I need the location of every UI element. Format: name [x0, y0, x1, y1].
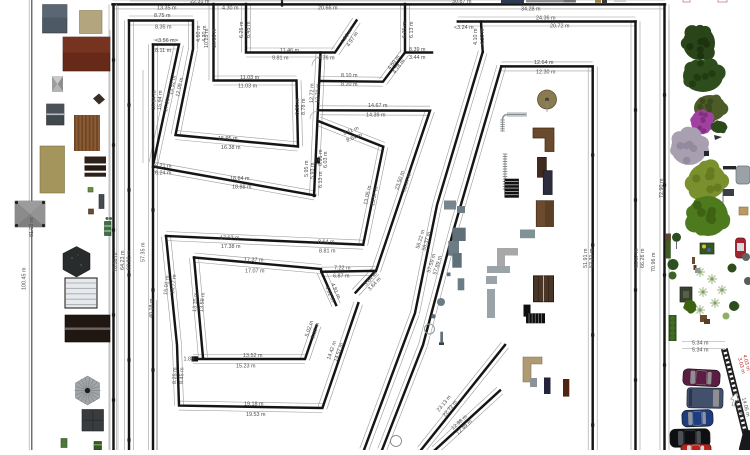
- svg-text:<3.56 m>: <3.56 m>: [155, 38, 178, 44]
- svg-text:10.05 m: 10.05 m: [212, 28, 218, 48]
- svg-text:12.73 m: 12.73 m: [315, 83, 322, 103]
- svg-text:66.26 m: 66.26 m: [640, 248, 646, 268]
- svg-text:20.66 m: 20.66 m: [318, 6, 338, 12]
- svg-text:19.18 m: 19.18 m: [244, 401, 264, 407]
- svg-text:8.81 m: 8.81 m: [319, 249, 336, 255]
- svg-text:8.78 m: 8.78 m: [301, 98, 307, 115]
- svg-text:40.18 m: 40.18 m: [149, 298, 155, 318]
- svg-text:6.21 m: 6.21 m: [155, 164, 172, 170]
- svg-text:63.82 m: 63.82 m: [127, 250, 133, 270]
- svg-text:8.45 m: 8.45 m: [179, 367, 186, 384]
- svg-text:70.96 m: 70.96 m: [651, 252, 657, 272]
- svg-text:9.81 m: 9.81 m: [272, 56, 289, 62]
- svg-text:4.30 m: 4.30 m: [222, 6, 239, 12]
- svg-text:6.13 m: 6.13 m: [409, 21, 415, 38]
- svg-text:17.37 m: 17.37 m: [244, 258, 264, 264]
- svg-text:1.88: 1.88: [184, 357, 195, 363]
- svg-text:6.13 m: 6.13 m: [318, 171, 324, 188]
- svg-text:20.72 m: 20.72 m: [550, 24, 570, 30]
- svg-text:24.36 m: 24.36 m: [536, 16, 556, 22]
- svg-text:15.95 m: 15.95 m: [218, 136, 238, 142]
- svg-text:18.88 m: 18.88 m: [232, 185, 252, 191]
- svg-text:4.76 m: 4.76 m: [318, 56, 335, 62]
- svg-text:8.35 m: 8.35 m: [155, 24, 172, 30]
- svg-text:6.24 m: 6.24 m: [155, 171, 172, 177]
- svg-text:18.64 m: 18.64 m: [230, 176, 250, 182]
- svg-text:6.87 m: 6.87 m: [333, 274, 350, 280]
- svg-text:5.34 m: 5.34 m: [692, 341, 709, 347]
- svg-text:4.30 m: 4.30 m: [202, 25, 208, 42]
- svg-text:8.39 m: 8.39 m: [409, 47, 426, 53]
- svg-text:6.25 m: 6.25 m: [239, 21, 245, 38]
- svg-text:57.35 m: 57.35 m: [141, 242, 147, 262]
- svg-text:12.30 m: 12.30 m: [536, 70, 556, 76]
- svg-text:6.25 m: 6.25 m: [402, 21, 408, 38]
- svg-text:34.28 m: 34.28 m: [521, 7, 541, 13]
- svg-text:8.10 m: 8.10 m: [341, 73, 358, 79]
- svg-text:4.10 m: 4.10 m: [473, 28, 479, 45]
- svg-text:<3.24 m: <3.24 m: [454, 25, 474, 31]
- svg-text:4.10 m: 4.10 m: [480, 28, 486, 45]
- svg-text:17.62 m: 17.62 m: [220, 236, 240, 242]
- svg-text:3.44 m: 3.44 m: [409, 55, 426, 61]
- svg-text:12.64 m: 12.64 m: [534, 60, 554, 66]
- svg-text:64.23 m: 64.23 m: [120, 250, 126, 270]
- svg-text:19.53 m: 19.53 m: [246, 412, 266, 418]
- svg-text:8.11 m: 8.11 m: [155, 48, 172, 54]
- svg-text:22.31 m: 22.31 m: [190, 0, 210, 5]
- svg-text:13.52 m: 13.52 m: [243, 353, 263, 359]
- svg-text:6.45 m: 6.45 m: [246, 21, 252, 38]
- svg-text:16.38 m: 16.38 m: [221, 145, 241, 151]
- svg-text:11.03 m: 11.03 m: [240, 75, 260, 81]
- svg-text:13.35 m: 13.35 m: [157, 6, 177, 12]
- svg-text:14.67 m: 14.67 m: [368, 103, 388, 109]
- svg-text:15.23 m: 15.23 m: [236, 364, 256, 370]
- svg-text:11.03 m: 11.03 m: [238, 84, 258, 90]
- svg-text:6.03 m: 6.03 m: [323, 151, 329, 168]
- svg-text:7.22 m: 7.22 m: [334, 266, 351, 272]
- svg-text:52.31 m: 52.31 m: [589, 248, 595, 268]
- svg-text:70.06 m: 70.06 m: [113, 252, 119, 272]
- svg-text:17.38 m: 17.38 m: [221, 244, 241, 250]
- svg-text:72.90 m: 72.90 m: [659, 178, 665, 198]
- svg-text:14.39 m: 14.39 m: [366, 113, 386, 119]
- svg-text:8.64 m: 8.64 m: [318, 240, 335, 246]
- svg-text:5.93 m: 5.93 m: [310, 162, 316, 179]
- svg-text:5.34 m: 5.34 m: [692, 348, 709, 354]
- svg-text:8.75 m: 8.75 m: [154, 13, 171, 19]
- svg-text:8.25 m: 8.25 m: [172, 367, 179, 384]
- svg-text:100.45 m: 100.45 m: [22, 267, 28, 290]
- svg-text:11.46 m: 11.46 m: [280, 48, 300, 54]
- svg-text:81.02 m: 81.02 m: [29, 217, 35, 237]
- svg-text:17.07 m: 17.07 m: [245, 269, 265, 275]
- svg-text:30.87 m: 30.87 m: [452, 0, 472, 5]
- svg-text:8.20 m: 8.20 m: [341, 82, 358, 88]
